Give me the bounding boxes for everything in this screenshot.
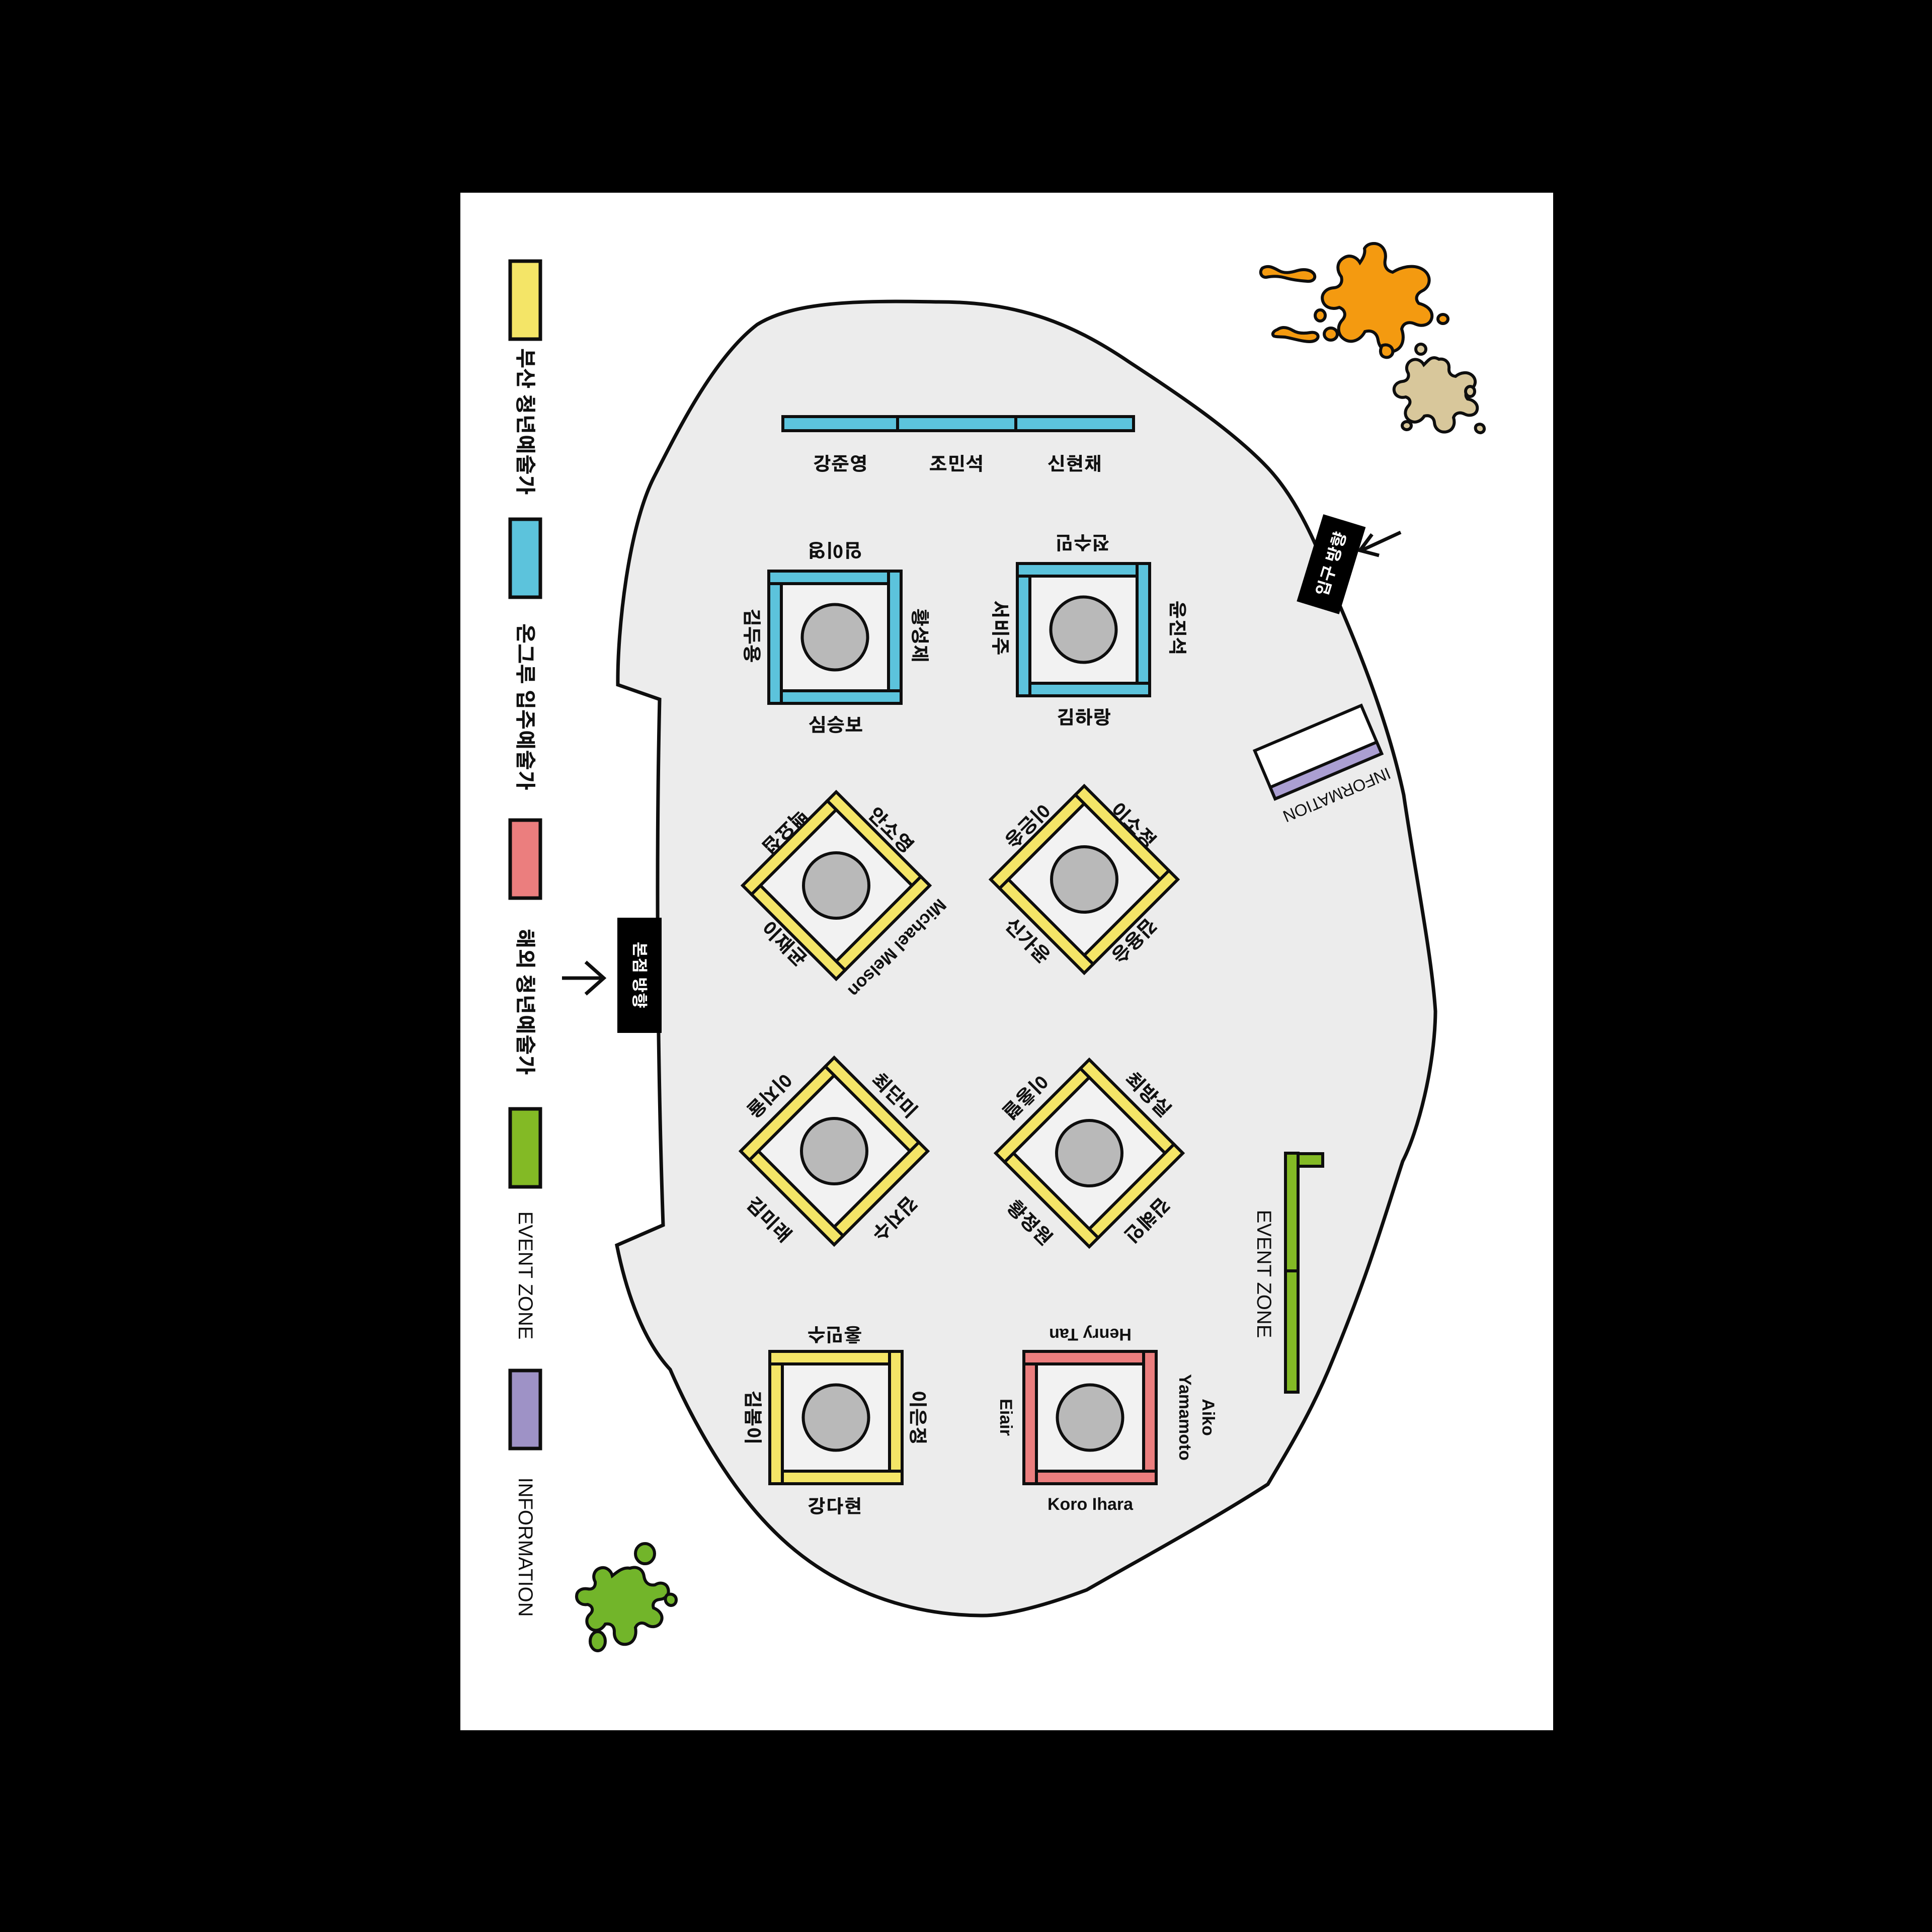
svg-text:Eiair: Eiair [996, 1399, 1015, 1436]
svg-text:Henry Tan: Henry Tan [1049, 1325, 1132, 1344]
svg-text:EVENT ZONE: EVENT ZONE [1253, 1210, 1275, 1338]
svg-text:Yamamoto: Yamamoto [1175, 1374, 1194, 1461]
svg-text:Koro Ihara: Koro Ihara [1048, 1495, 1134, 1514]
svg-text:Aiko: Aiko [1198, 1399, 1218, 1436]
svg-text:INFORMATION: INFORMATION [514, 1477, 536, 1617]
svg-text:EVENT ZONE: EVENT ZONE [514, 1212, 536, 1340]
